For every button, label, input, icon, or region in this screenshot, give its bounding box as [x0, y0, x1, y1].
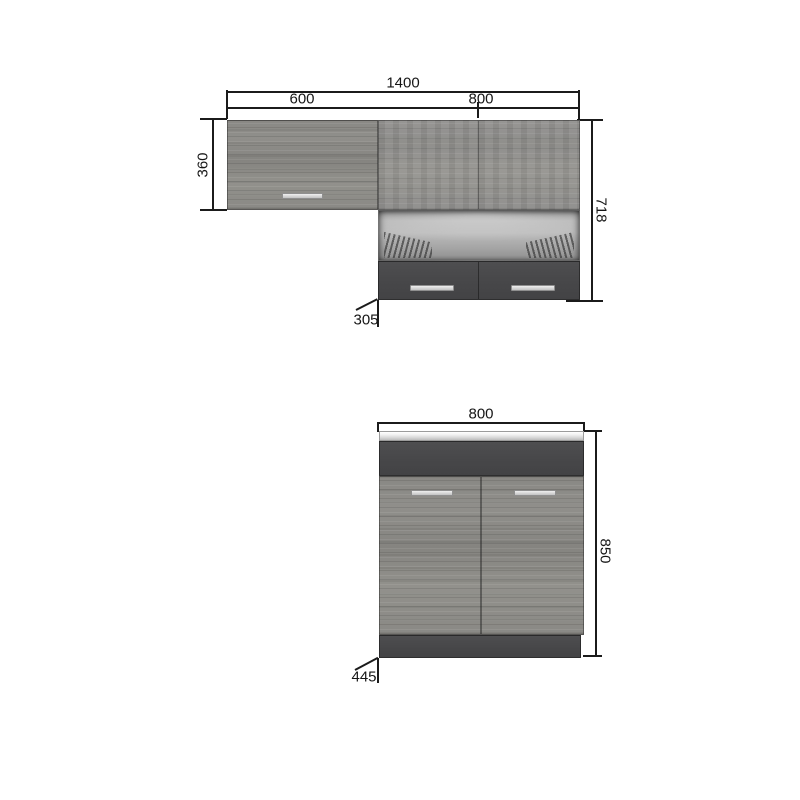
dim-label-left-cabinet-height: 360: [196, 152, 211, 177]
dim-label-base-height: 850: [598, 538, 613, 563]
wall-cabinet-open-shelf: [378, 210, 580, 261]
leader-line-305: [356, 298, 378, 311]
ext-line-445: [377, 658, 379, 683]
wall-cabinet-drawer-right: [478, 261, 580, 300]
base-cabinet-door-right: [481, 476, 584, 635]
dim-label-total-width: 1400: [386, 76, 419, 91]
dim-label-left-section-width: 600: [289, 92, 314, 107]
base-door-left-handle: [411, 490, 453, 496]
ext-line-850-bottom: [583, 655, 602, 657]
wall-cabinet-drawer-left: [378, 261, 479, 300]
base-cabinet-apron: [379, 441, 584, 476]
ext-line-850-top: [584, 430, 602, 432]
base-cabinet-door-left: [379, 476, 481, 635]
wall-cabinet-left-handle: [282, 193, 323, 199]
dim-label-wall-depth: 305: [353, 313, 378, 328]
wall-cabinet-right-door-1: [378, 120, 479, 210]
cabinet-dimension-drawing: 1400 600 800 360 718 305: [0, 0, 800, 800]
dim-label-right-section-width: 800: [468, 92, 493, 107]
base-cabinet-plinth: [379, 635, 581, 658]
dish-rack-right: [526, 232, 574, 258]
base-cabinet-countertop: [379, 431, 584, 441]
dim-line-section-widths: [227, 107, 579, 109]
ext-line-right: [578, 90, 580, 119]
dim-line-left-cabinet-height: [212, 119, 214, 210]
dim-label-base-width: 800: [468, 407, 493, 422]
base-door-right-handle: [514, 490, 556, 496]
wall-drawer-left-handle: [410, 285, 454, 291]
dim-label-base-depth: 445: [351, 670, 376, 685]
wall-drawer-right-handle: [511, 285, 555, 291]
ext-line-left: [226, 90, 228, 119]
dish-rack-left: [384, 232, 432, 258]
dim-label-right-section-height: 718: [594, 197, 609, 222]
ext-line-718-bottom: [566, 300, 603, 302]
wall-cabinet-right-door-2: [478, 120, 580, 210]
ext-line-718-top: [577, 119, 603, 121]
